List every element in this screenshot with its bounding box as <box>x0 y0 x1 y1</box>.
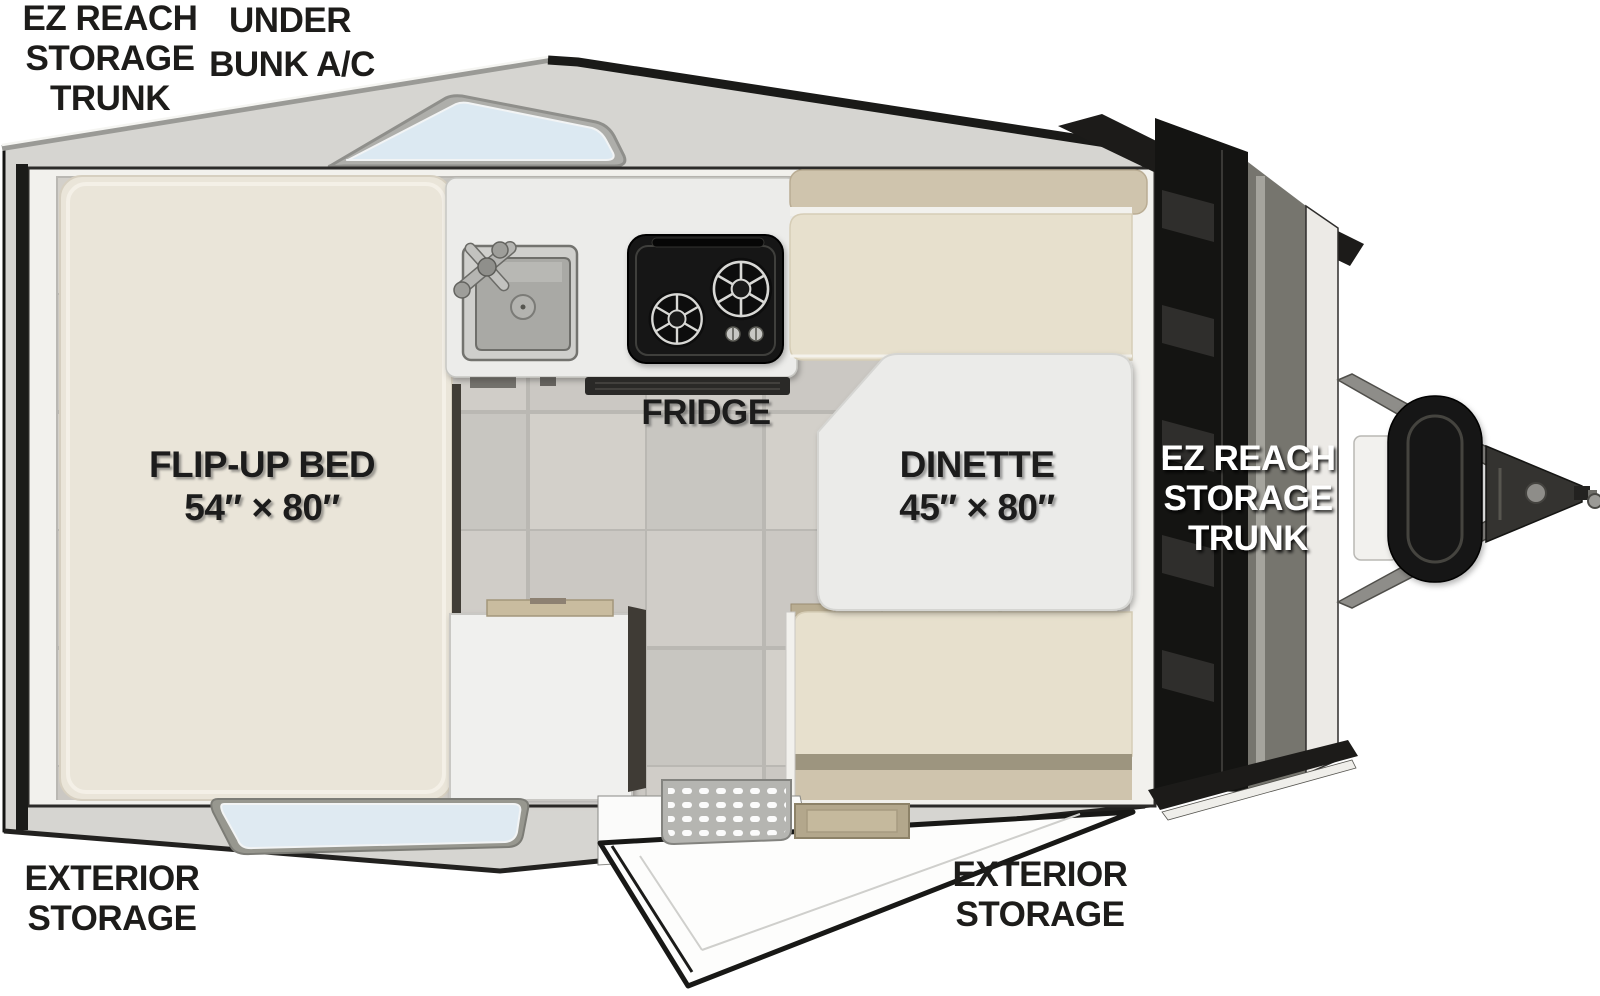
label-exterior-storage-entry-line1: EXTERIOR <box>953 855 1128 894</box>
stove-cooktop <box>628 235 783 363</box>
counter-foot-left <box>470 377 516 388</box>
stove-lid-handle <box>652 238 764 247</box>
burner-left-icon <box>649 291 706 348</box>
label-front-trunk-line2: STORAGE <box>1164 479 1333 518</box>
label-exterior-storage-rear-line1: EXTERIOR <box>25 859 200 898</box>
label-flip-up-bed-line2: 54″ × 80″ <box>184 487 340 528</box>
label-rear-trunk-line1: EZ REACH <box>23 0 198 38</box>
entry-step-holes <box>668 784 786 838</box>
bench-top-seat <box>790 214 1132 360</box>
bench-bottom-backrest <box>794 770 1132 800</box>
propane-tank-cover <box>1388 396 1482 582</box>
burner-right-icon <box>710 258 772 320</box>
cabinet-side-panel <box>628 606 646 792</box>
label-front-trunk-line3: TRUNK <box>1188 519 1308 558</box>
dinette-bench-top <box>790 170 1147 360</box>
door-mat <box>795 804 909 838</box>
label-fridge: FRIDGE <box>641 393 770 432</box>
bench-bottom-seam <box>794 754 1132 770</box>
label-dinette-line2: 45″ × 80″ <box>899 487 1055 528</box>
cabinet-wood-clasp <box>530 598 566 604</box>
label-flip-up-bed-line1: FLIP-UP BED <box>149 444 375 485</box>
label-exterior-storage-rear-line2: STORAGE <box>28 899 197 938</box>
floorplan-svg: EZ REACH STORAGE TRUNK UNDER BUNK A/C FL… <box>0 0 1600 996</box>
sink-basin-shade <box>496 262 562 282</box>
label-rear-trunk-line2: STORAGE <box>26 39 195 78</box>
tongue-hitch-assembly <box>1338 374 1600 608</box>
counter-foot-right <box>540 377 556 386</box>
door-mat-inner <box>807 810 897 832</box>
label-dinette-line1: DINETTE <box>900 444 1055 485</box>
kitchen-counter <box>446 178 797 395</box>
window-glass <box>221 804 520 848</box>
bench-bottom-side-panel <box>786 612 795 800</box>
cabinet-body <box>450 614 632 800</box>
hitch-coupler <box>1574 486 1590 500</box>
hitch-jack-wheel-icon <box>1526 483 1546 503</box>
sink <box>454 239 577 360</box>
label-exterior-storage-entry-line2: STORAGE <box>956 895 1125 934</box>
sink-drain-dot <box>521 305 526 310</box>
hitch-ball-icon <box>1588 494 1600 508</box>
exterior-window-rear <box>211 799 528 854</box>
label-under-bunk-ac-line2: BUNK A/C <box>209 45 375 84</box>
label-front-trunk-line1: EZ REACH <box>1161 439 1336 478</box>
camper-floorplan-page: EZ REACH STORAGE TRUNK UNDER BUNK A/C FL… <box>0 0 1600 996</box>
dinette-bench-bottom <box>786 604 1132 800</box>
interior-frame-left <box>16 164 28 830</box>
label-under-bunk-ac-line1: UNDER <box>229 1 351 40</box>
bench-bottom-seat <box>794 612 1132 756</box>
bedside-cabinet <box>450 598 646 800</box>
label-rear-trunk-line3: TRUNK <box>50 79 170 118</box>
entry-step-grate <box>662 780 791 844</box>
trunk-inner-stripe <box>1256 176 1265 780</box>
